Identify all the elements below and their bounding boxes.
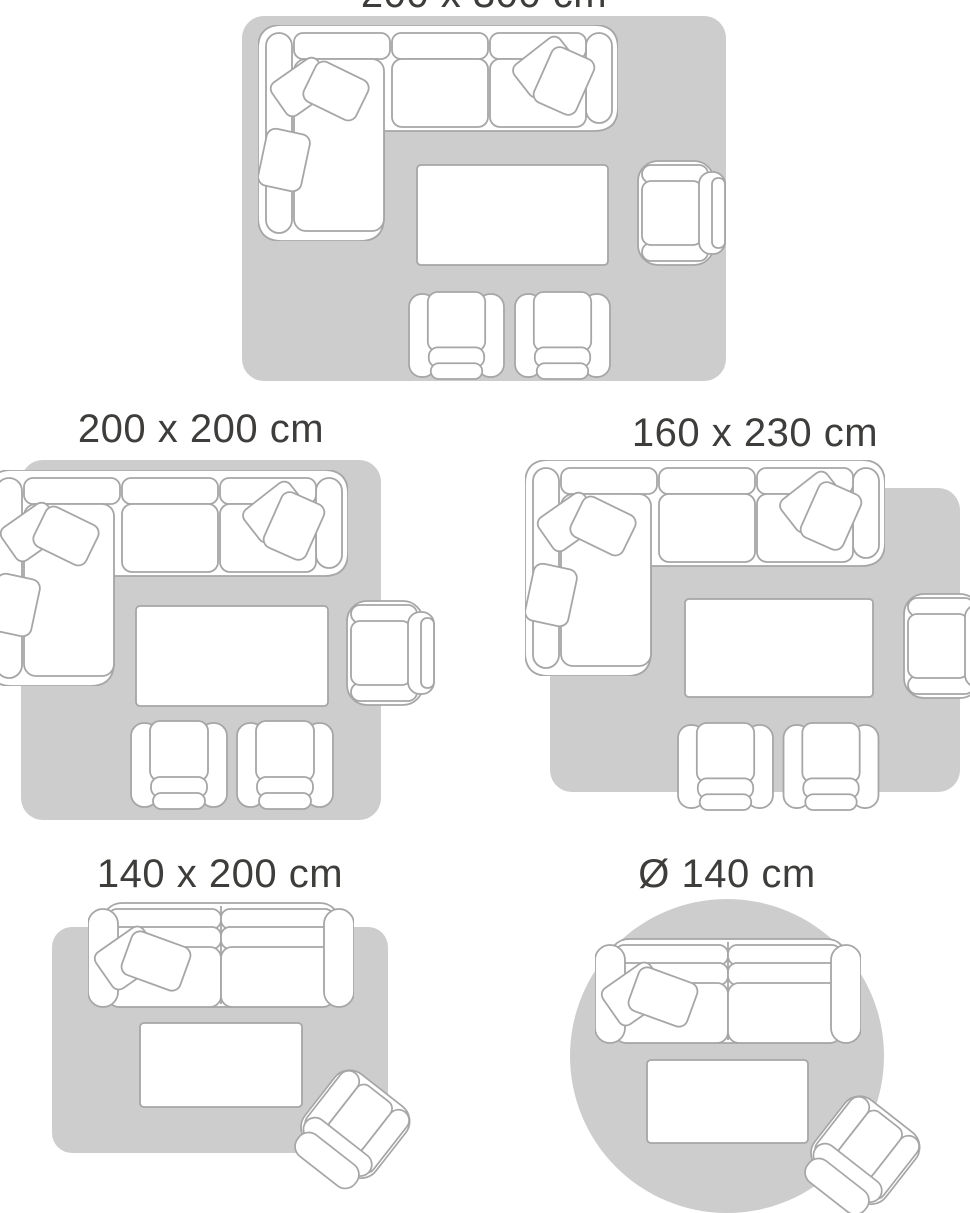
layout-160x230 (523, 460, 970, 810)
small-armchair (515, 292, 610, 379)
two-seat-sofa (88, 903, 354, 1007)
armchair (638, 161, 725, 265)
two-seat-sofa (595, 939, 861, 1043)
small-armchair (784, 723, 879, 810)
rug-size-guide: 200 x 300 cm 200 x 200 cm 160 x 230 cm 1… (0, 0, 970, 1213)
coffee-table (417, 165, 608, 265)
small-armchair (678, 723, 773, 810)
small-armchair (237, 721, 333, 809)
coffee-table (136, 606, 328, 706)
armchair (347, 601, 434, 705)
small-armchair (409, 292, 504, 379)
small-armchair (131, 721, 227, 809)
coffee-table (647, 1060, 808, 1143)
size-guide-illustration (0, 0, 970, 1213)
layout-200x200 (0, 460, 434, 820)
coffee-table (140, 1023, 302, 1107)
layout-d140 (570, 899, 927, 1213)
layout-140x200 (52, 903, 417, 1199)
coffee-table (685, 599, 873, 697)
armchair (904, 594, 970, 698)
layout-200x300 (242, 16, 726, 381)
